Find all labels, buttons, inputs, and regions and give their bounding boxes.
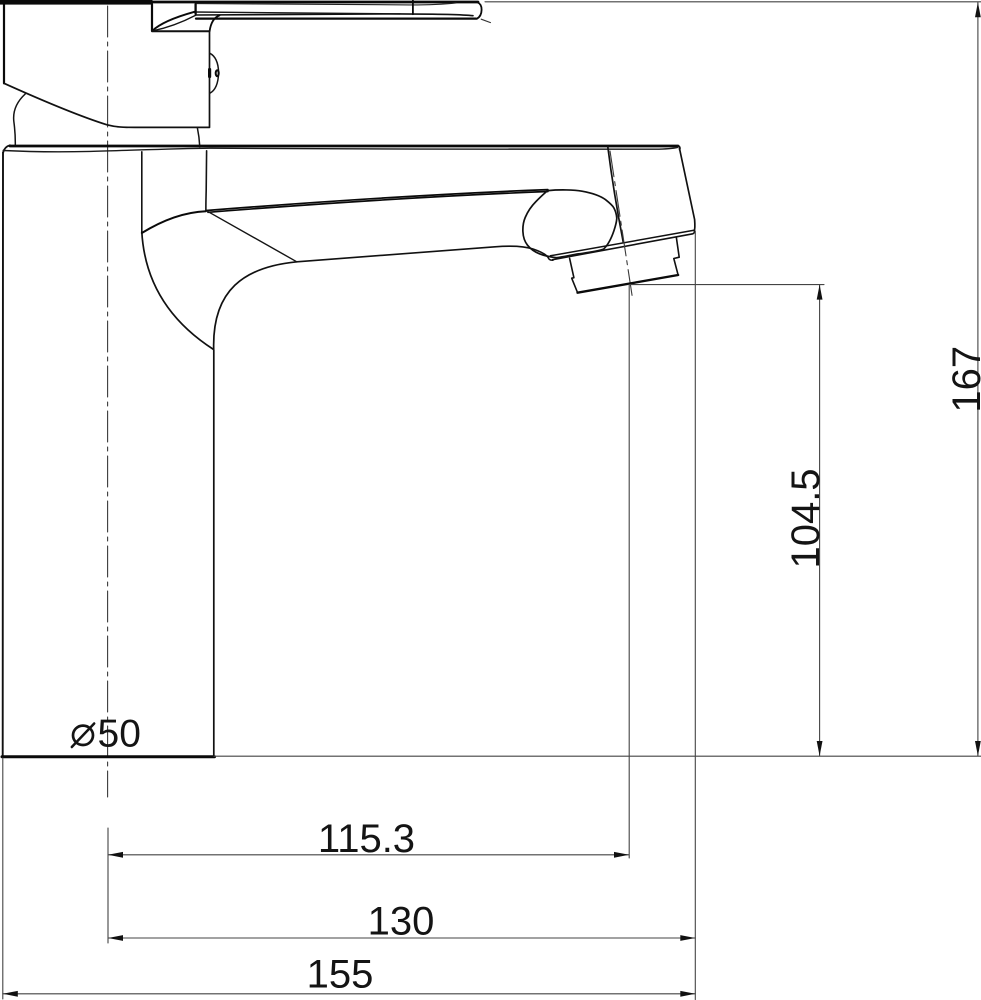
svg-text:115.3: 115.3 [318, 817, 415, 861]
svg-text:130: 130 [368, 900, 435, 944]
svg-text:50: 50 [98, 713, 141, 756]
svg-text:155: 155 [307, 953, 374, 997]
svg-text:104.5: 104.5 [784, 468, 828, 568]
svg-text:167: 167 [945, 346, 981, 413]
